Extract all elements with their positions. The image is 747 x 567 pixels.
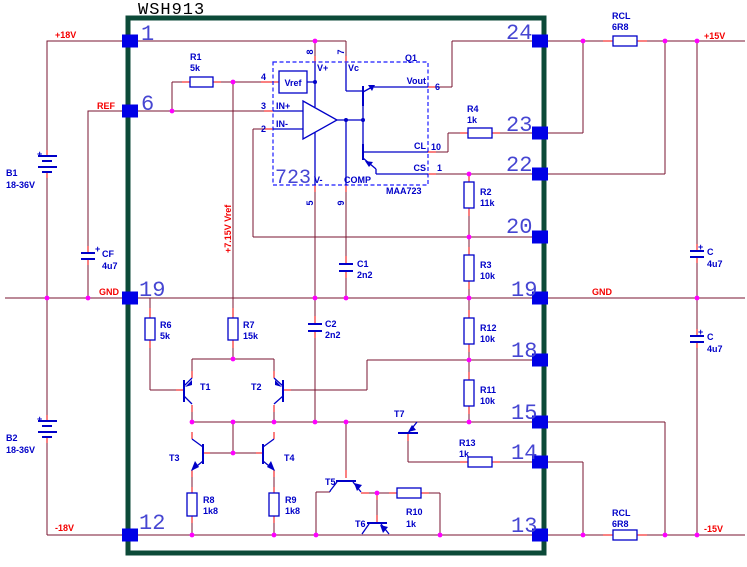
ic-port-cl: CL	[414, 141, 426, 151]
pin-number-14: 14	[511, 441, 537, 466]
net-plus15v: +15V	[704, 31, 725, 41]
wires-external-right	[548, 41, 745, 535]
net-gnd-right: GND	[592, 287, 613, 297]
resistor-name: R4	[467, 104, 479, 114]
resistor-name: R11	[480, 385, 496, 395]
cap-value: 4u7	[707, 344, 723, 354]
transistor-label: T3	[169, 453, 180, 463]
battery-b2: + B2 18-36V	[6, 414, 57, 455]
battery-value: 18-36V	[6, 180, 35, 190]
ic-port-vplus: V+	[317, 63, 328, 73]
transistor-t4: T4	[263, 439, 295, 471]
net-minus18v: -18V	[55, 523, 74, 533]
transistor-label: T6	[355, 519, 366, 529]
ic-pin-2: 2	[261, 124, 266, 134]
ic-port-vminus: V-	[314, 175, 323, 185]
capacitor-cf: + CF 4u7	[81, 244, 118, 271]
battery-b1: + B1 18-36V	[6, 149, 57, 190]
pin-number-20: 20	[506, 215, 532, 240]
schematic-page: WSH913 + B1 18-36V + B2 18-36V + CF 4u7 …	[0, 0, 747, 567]
cap-name: C2	[325, 319, 337, 329]
resistor-name: RCL	[612, 508, 631, 518]
resistor-name: R12	[480, 323, 497, 333]
ic-part-number: MAA723	[386, 186, 422, 196]
ic-port-inp: IN+	[276, 101, 290, 111]
resistor-value: 1k	[459, 449, 470, 459]
ic-pin-3: 3	[261, 101, 266, 111]
resistor-name: R2	[480, 187, 492, 197]
ic-pin-7: 7	[336, 49, 346, 54]
cap-name: C1	[357, 259, 369, 269]
pin-number-23: 23	[506, 113, 532, 138]
module-outline	[128, 18, 544, 553]
resistor-name: R10	[406, 507, 423, 517]
pin-number-24: 24	[506, 21, 532, 46]
resistor-name: R9	[285, 495, 297, 505]
pin-number-12: 12	[139, 511, 165, 536]
transistor-label: T1	[200, 382, 211, 392]
transistor-label: T2	[251, 382, 262, 392]
cap-plus-sign: +	[698, 327, 703, 337]
capacitor-c-top: + C 4u7	[690, 242, 723, 269]
cap-value: 2n2	[357, 270, 373, 280]
ic-pin-9: 9	[336, 200, 346, 205]
resistor-value: 6R8	[612, 519, 629, 529]
ic-pin-8: 8	[305, 49, 315, 54]
resistor-value: 6R8	[612, 22, 629, 32]
net-plus18v: +18V	[55, 30, 76, 40]
opamp-triangle	[303, 101, 337, 139]
transistor-t7: T7	[394, 409, 418, 433]
resistor-r11: R11 10k	[464, 380, 496, 406]
battery-plus-sign: +	[37, 149, 42, 159]
resistor-value: 1k8	[203, 506, 218, 516]
pin-number-18: 18	[511, 339, 537, 364]
pad-pin-24	[532, 35, 548, 48]
pin-number-22: 22	[506, 153, 532, 178]
cap-value: 4u7	[707, 259, 723, 269]
module-title: WSH913	[138, 1, 205, 20]
ic-pin-1: 1	[437, 163, 442, 173]
cap-plus-sign: +	[698, 242, 703, 252]
resistor-name: R1	[190, 52, 202, 62]
pin-number-6: 6	[141, 92, 154, 117]
resistor-value: 11k	[480, 198, 496, 208]
resistor-r12: R12 10k	[464, 318, 497, 344]
transistor-t2: T2	[251, 378, 283, 404]
ic-pin-5: 5	[305, 200, 315, 205]
pad-pin-6	[122, 105, 138, 118]
battery-name: B1	[6, 168, 18, 178]
net-ref: REF	[97, 101, 116, 111]
resistor-r2: R2 11k	[464, 182, 496, 208]
capacitor-c2: C2 2n2	[308, 319, 341, 340]
resistor-value: 5k	[190, 63, 201, 73]
resistor-rcl-bottom: RCL 6R8	[612, 508, 637, 540]
resistor-name: R6	[160, 320, 172, 330]
resistor-value: 10k	[480, 271, 496, 281]
resistor-r1: R1 5k	[190, 52, 213, 87]
pad-pin-20	[532, 231, 548, 244]
resistor-rcl-top: RCL 6R8	[612, 11, 637, 46]
pad-pin-12	[122, 529, 138, 542]
net-vref-rail: +7.15V Vref	[223, 204, 233, 253]
capacitor-c-bottom: + C 4u7	[690, 327, 723, 354]
cap-name: C	[707, 332, 714, 342]
battery-plus-sign: +	[37, 414, 42, 424]
ic-pin-10: 10	[431, 142, 441, 152]
resistor-name: R3	[480, 260, 492, 270]
cap-value: 4u7	[102, 261, 118, 271]
ic-port-vout: Vout	[407, 76, 426, 86]
cap-value: 2n2	[325, 330, 341, 340]
resistor-r13: R13 1k	[459, 438, 492, 467]
resistor-value: 5k	[160, 331, 171, 341]
pad-pin-23	[532, 127, 548, 140]
resistor-r3: R3 10k	[464, 255, 496, 281]
resistor-r10: R10 1k	[397, 488, 423, 529]
transistor-t3: T3	[169, 439, 203, 471]
transistor-label: T7	[394, 409, 405, 419]
schematic-canvas: WSH913 + B1 18-36V + B2 18-36V + CF 4u7 …	[0, 0, 747, 567]
ic-port-comp: COMP	[344, 175, 371, 185]
resistor-value: 1k	[467, 115, 478, 125]
pin-number-13: 13	[511, 514, 537, 539]
ic-maa723: Vref Q1 V+ Vc IN+ IN- Vout CL CS V- COMP…	[261, 49, 442, 205]
ic-723-label: 723	[275, 167, 311, 190]
pin-number-19-left: 19	[139, 278, 165, 303]
resistor-value: 15k	[243, 331, 259, 341]
resistor-value: 1k8	[285, 506, 300, 516]
ic-port-cs: CS	[413, 163, 426, 173]
transistor-t5: T5	[325, 477, 362, 492]
pad-pin-1	[122, 35, 138, 48]
vref-block-label: Vref	[284, 78, 302, 88]
net-minus15v: -15V	[704, 524, 723, 534]
pin-number-1: 1	[141, 22, 154, 47]
pin-number-15: 15	[511, 401, 537, 426]
resistor-value: 10k	[480, 334, 496, 344]
resistor-r6: R6 5k	[145, 318, 172, 341]
resistor-name: R13	[459, 438, 476, 448]
battery-value: 18-36V	[6, 445, 35, 455]
transistor-t6: T6	[355, 519, 389, 534]
pad-pin-19-left	[122, 292, 138, 305]
resistor-r4: R4 1k	[467, 104, 492, 138]
pin-number-19-right: 19	[511, 278, 537, 303]
resistor-name: RCL	[612, 11, 631, 21]
cap-plus-sign: +	[95, 244, 100, 254]
battery-name: B2	[6, 433, 18, 443]
ic-port-inn: IN-	[276, 119, 288, 129]
cap-name: C	[707, 247, 714, 257]
ic-pin-6: 6	[435, 82, 440, 92]
resistor-r7: R7 15k	[228, 318, 259, 341]
pad-pin-22	[532, 168, 548, 181]
resistor-value: 1k	[406, 519, 417, 529]
transistor-t1: T1	[184, 378, 211, 404]
cap-name: CF	[102, 249, 114, 259]
transistor-label: T4	[284, 453, 295, 463]
resistor-r9: R9 1k8	[269, 493, 300, 516]
resistor-name: R8	[203, 495, 215, 505]
net-gnd-left: GND	[99, 287, 120, 297]
resistor-name: R7	[243, 320, 255, 330]
q1-label: Q1	[405, 53, 417, 63]
ic-port-vc: Vc	[348, 63, 359, 73]
ic-pin-4: 4	[261, 72, 266, 82]
capacitor-c1: C1 2n2	[339, 259, 373, 280]
resistor-r8: R8 1k8	[187, 493, 218, 516]
resistor-value: 10k	[480, 396, 496, 406]
transistor-label: T5	[325, 477, 336, 487]
